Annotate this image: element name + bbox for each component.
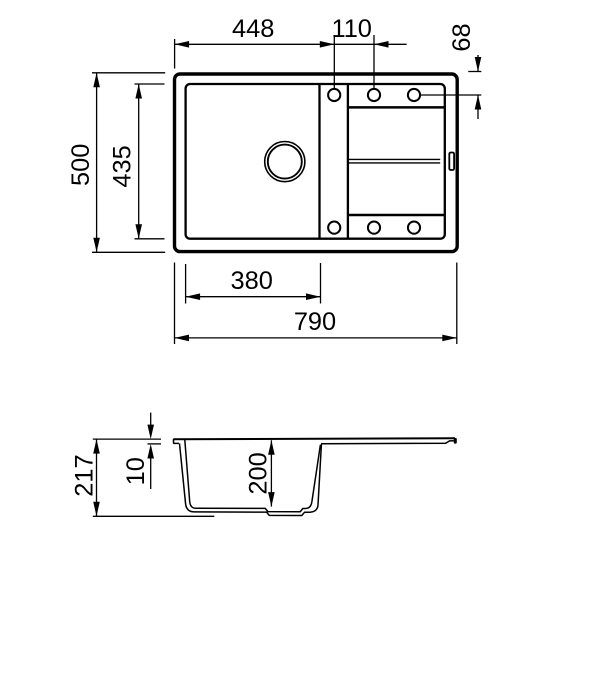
svg-text:200: 200 [244, 452, 272, 494]
svg-text:217: 217 [71, 454, 99, 496]
svg-text:68: 68 [448, 23, 476, 51]
svg-text:10: 10 [122, 457, 150, 485]
svg-text:500: 500 [67, 144, 95, 186]
svg-text:790: 790 [294, 308, 336, 336]
svg-text:435: 435 [108, 145, 136, 187]
svg-text:380: 380 [231, 267, 273, 295]
svg-text:110: 110 [331, 15, 371, 43]
svg-text:448: 448 [232, 15, 274, 43]
